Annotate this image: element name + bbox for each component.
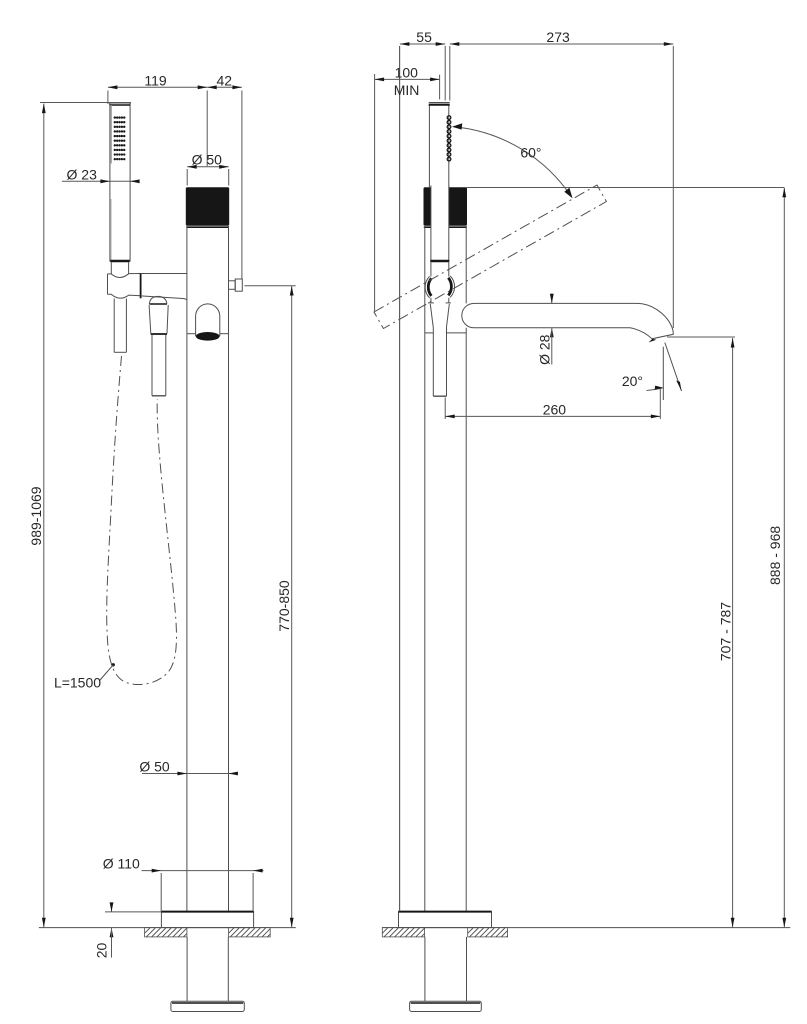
svg-text:55: 55 <box>416 29 432 45</box>
svg-text:260: 260 <box>543 401 567 417</box>
svg-text:20: 20 <box>93 943 109 959</box>
svg-text:Ø 110: Ø 110 <box>103 855 140 871</box>
svg-text:100: 100 <box>395 64 419 80</box>
svg-text:273: 273 <box>546 29 570 45</box>
svg-text:707 - 787: 707 - 787 <box>718 602 734 661</box>
svg-text:888 - 968: 888 - 968 <box>767 526 783 585</box>
svg-text:Ø 50: Ø 50 <box>192 151 223 167</box>
svg-text:20°: 20° <box>622 373 643 389</box>
svg-text:770-850: 770-850 <box>276 580 292 632</box>
svg-text:42: 42 <box>217 73 233 89</box>
svg-text:MIN: MIN <box>394 82 420 98</box>
svg-text:989-1069: 989-1069 <box>28 486 44 545</box>
svg-text:119: 119 <box>144 73 167 89</box>
svg-text:60°: 60° <box>520 145 541 161</box>
svg-text:Ø 50: Ø 50 <box>139 759 170 775</box>
svg-text:L=1500: L=1500 <box>54 675 101 691</box>
svg-text:Ø 23: Ø 23 <box>67 167 98 183</box>
svg-text:Ø 28: Ø 28 <box>536 334 552 365</box>
